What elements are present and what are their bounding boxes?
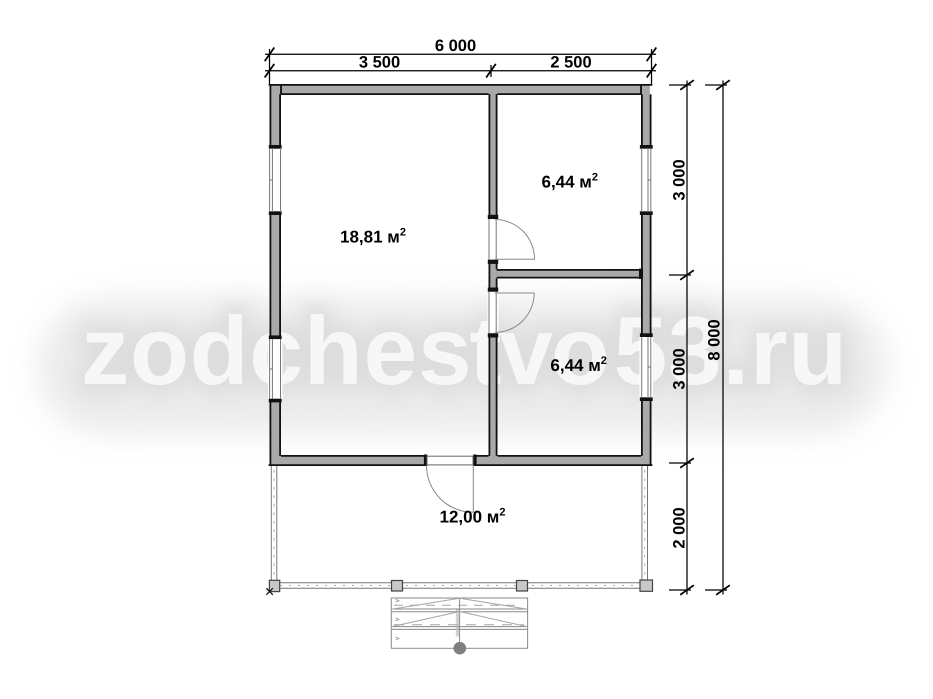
svg-text:2 000: 2 000 — [670, 507, 688, 548]
svg-text:18,81 м2: 18,81 м2 — [340, 227, 406, 247]
svg-text:12,00 м2: 12,00 м2 — [440, 506, 506, 526]
svg-text:8 000: 8 000 — [705, 319, 723, 360]
svg-text:3 000: 3 000 — [670, 348, 688, 389]
svg-text:6,44 м2: 6,44 м2 — [550, 355, 607, 375]
svg-text:3 000: 3 000 — [670, 159, 688, 200]
svg-text:2 500: 2 500 — [550, 54, 591, 72]
svg-text:3 500: 3 500 — [359, 54, 400, 72]
svg-text:6 000: 6 000 — [435, 37, 476, 55]
svg-text:6,44 м2: 6,44 м2 — [542, 171, 599, 191]
